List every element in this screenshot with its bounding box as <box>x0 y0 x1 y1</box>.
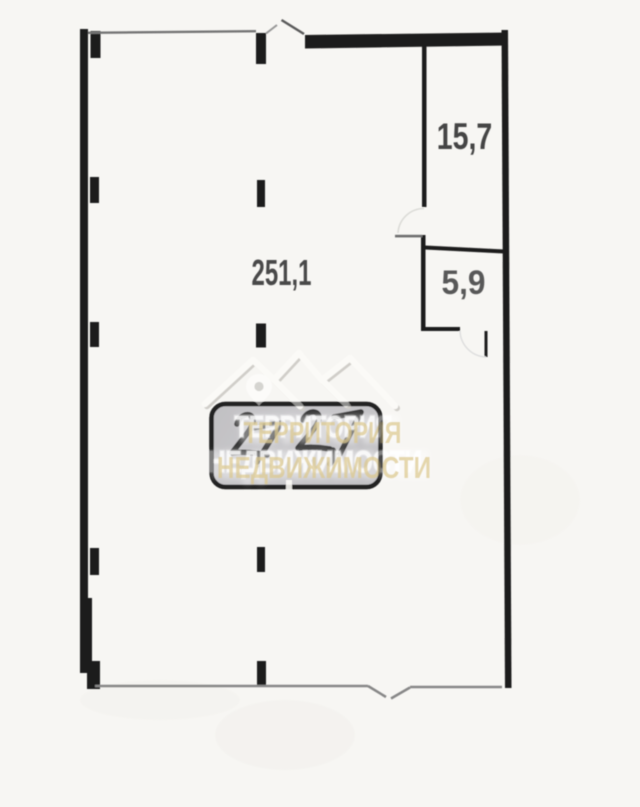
svg-text:5,9: 5,9 <box>442 263 486 301</box>
svg-text:15,7: 15,7 <box>437 115 492 156</box>
svg-text:ТЕРРИТОРИЯ: ТЕРРИТОРИЯ <box>243 415 401 450</box>
svg-text:НЕДВИЖИМОСТИ: НЕДВИЖИМОСТИ <box>217 450 431 484</box>
svg-text:251,1: 251,1 <box>252 253 312 293</box>
